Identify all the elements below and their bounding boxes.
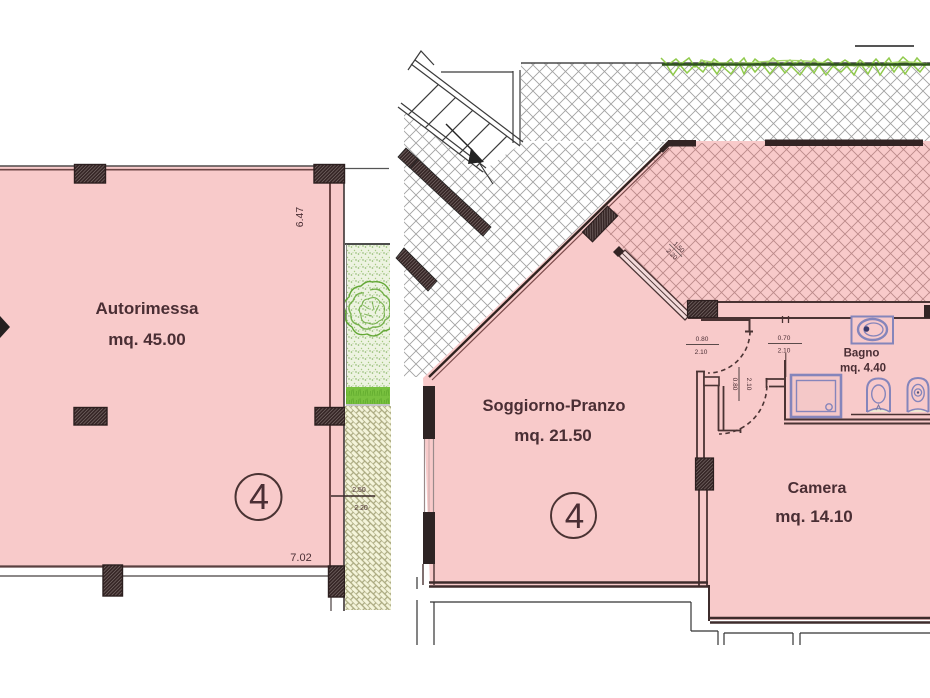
svg-text:2.10: 2.10 [695, 349, 708, 356]
svg-text:mq. 14.10: mq. 14.10 [775, 507, 853, 526]
svg-text:7.02: 7.02 [290, 552, 311, 564]
svg-text:2.10: 2.10 [745, 378, 752, 391]
svg-text:4: 4 [249, 476, 269, 517]
svg-text:Soggiorno-Pranzo: Soggiorno-Pranzo [483, 397, 626, 415]
svg-text:0.70: 0.70 [778, 335, 791, 342]
svg-text:mq. 45.00: mq. 45.00 [108, 330, 186, 349]
svg-text:6.47: 6.47 [294, 207, 306, 228]
svg-text:mq. 21.50: mq. 21.50 [514, 426, 592, 445]
svg-text:2.10: 2.10 [778, 348, 791, 355]
svg-text:Bagno: Bagno [844, 348, 880, 360]
svg-text:Camera: Camera [788, 480, 847, 497]
svg-text:0.80: 0.80 [731, 378, 738, 391]
svg-text:Autorimessa: Autorimessa [96, 299, 200, 318]
svg-text:2.50: 2.50 [352, 487, 366, 494]
svg-text:mq. 4.40: mq. 4.40 [840, 363, 886, 375]
svg-text:4: 4 [565, 497, 584, 536]
svg-text:2.20: 2.20 [354, 505, 368, 512]
svg-text:0.80: 0.80 [696, 336, 709, 343]
